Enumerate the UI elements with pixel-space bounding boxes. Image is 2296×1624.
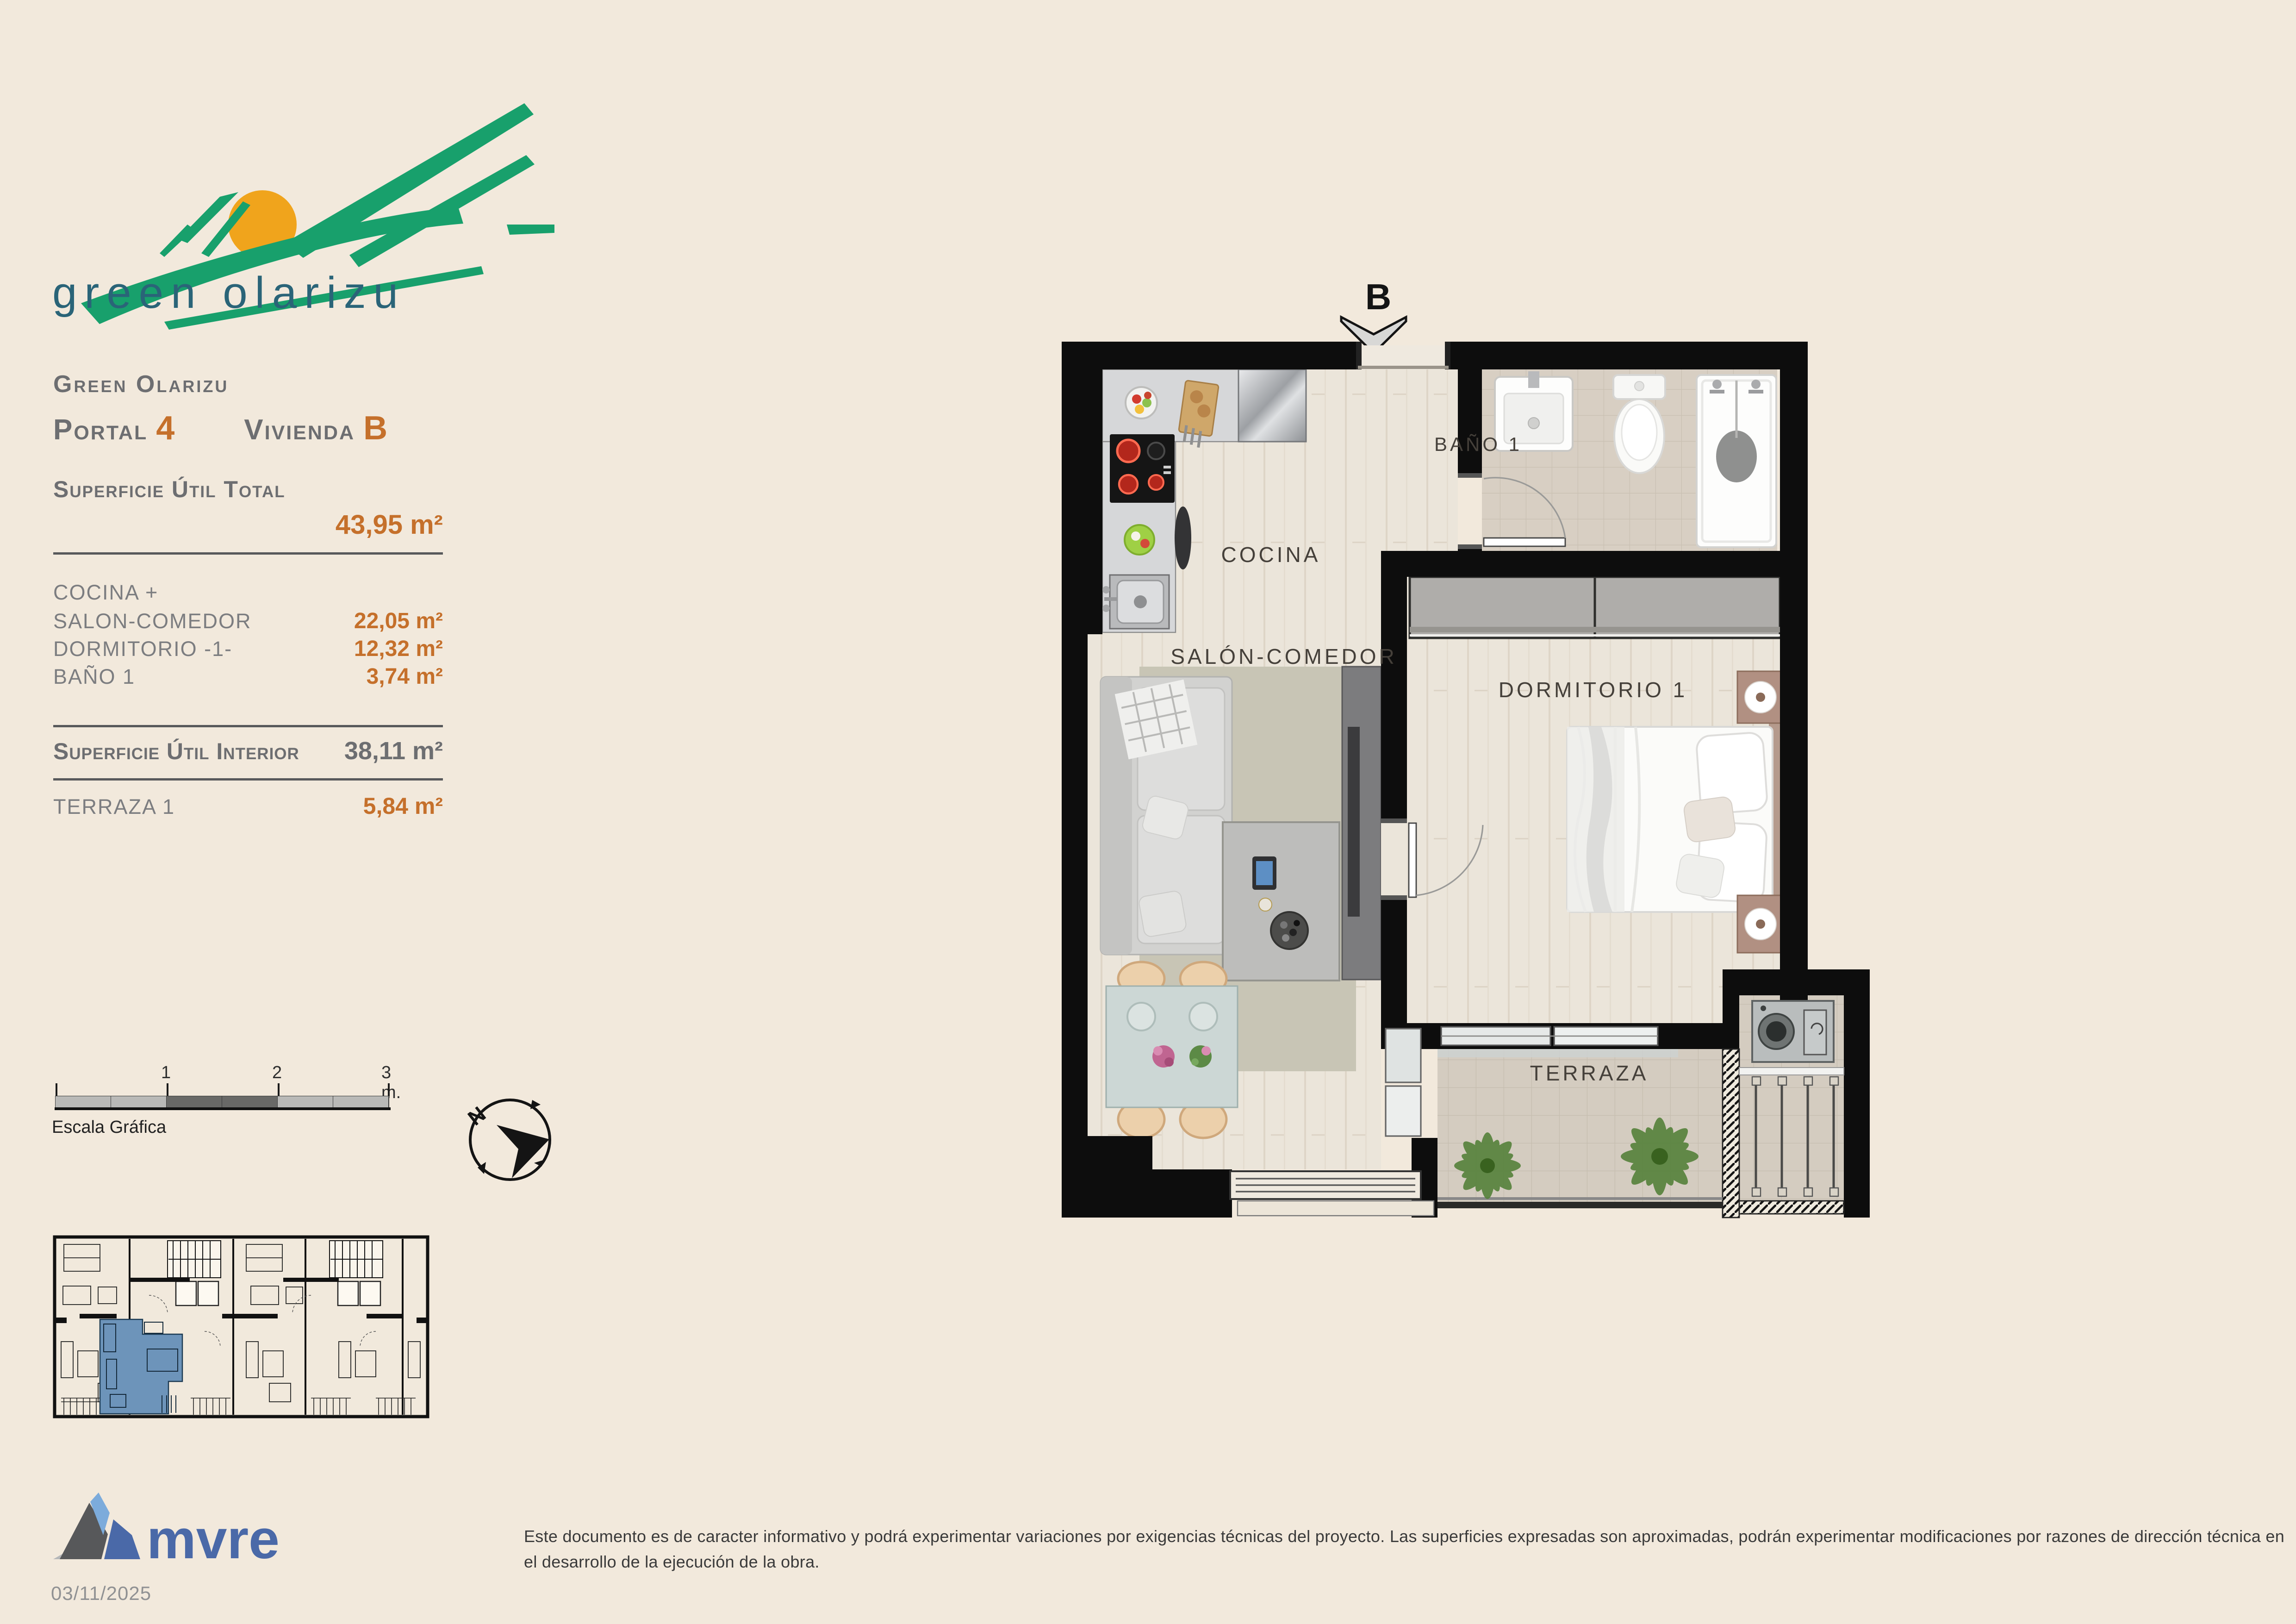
scale-tick-label: 2 bbox=[272, 1063, 282, 1083]
terrace-area-row: TERRAZA 1 5,84 m² bbox=[53, 793, 443, 819]
interior-label: Superficie Útil Interior bbox=[53, 738, 299, 765]
room-area-row: SALON-COMEDOR 22,05 m² bbox=[53, 608, 443, 636]
room-area-row: DORMITORIO -1- 12,32 m² bbox=[53, 636, 443, 664]
interior-value: 38,11 m² bbox=[344, 737, 443, 765]
room-area-list: COCINA + SALON-COMEDOR 22,05 m² DORMITOR… bbox=[53, 581, 443, 692]
entrance-letter-label: B bbox=[1346, 276, 1411, 318]
mvre-logo: mvre bbox=[49, 1490, 308, 1573]
terrace-label: TERRAZA 1 bbox=[53, 795, 175, 819]
room-label-salon: SALÓN-COMEDOR bbox=[1170, 644, 1397, 668]
kitchen-sink-icon bbox=[1102, 575, 1169, 629]
scale-tick bbox=[56, 1083, 57, 1096]
unit-summary-panel: Green Olarizu Portal 4 Vivienda B Superf… bbox=[53, 370, 443, 819]
room-area-row: BAÑO 1 3,74 m² bbox=[53, 664, 443, 692]
legal-disclaimer: Este documento es de caracter informativ… bbox=[524, 1524, 2290, 1574]
floor-plan: COCINA SALÓN-COMEDOR BAÑO 1 DORMITORIO 1… bbox=[1060, 338, 1874, 1227]
total-area-value: 43,95 m² bbox=[53, 509, 443, 540]
room-label: DORMITORIO -1- bbox=[53, 637, 232, 661]
room-label-bano: BAÑO 1 bbox=[1434, 433, 1522, 455]
room-label-cocina: COCINA bbox=[1221, 543, 1321, 567]
terrace-sliding-door bbox=[1386, 1029, 1421, 1136]
compass-north-label: N bbox=[464, 1102, 490, 1130]
scale-bar-segments bbox=[56, 1096, 389, 1107]
floorplan-document-page: green olarizu Green Olarizu Portal 4 Viv… bbox=[0, 0, 2296, 1624]
scale-tick bbox=[388, 1083, 390, 1096]
north-compass-icon: N bbox=[464, 1093, 556, 1186]
unit-title: Portal 4 Vivienda B bbox=[53, 409, 443, 447]
graphic-scale: 1 2 3 m. Escala Gráfica bbox=[52, 1063, 413, 1137]
mvre-wordmark: mvre bbox=[147, 1508, 280, 1570]
room-label: SALON-COMEDOR bbox=[53, 609, 252, 633]
stove-icon bbox=[1110, 434, 1175, 503]
divider bbox=[53, 552, 443, 555]
toilet-icon bbox=[1613, 375, 1665, 473]
nightstand bbox=[1737, 671, 1784, 723]
wardrobe bbox=[1410, 577, 1780, 638]
total-area-label: Superficie Útil Total bbox=[53, 476, 443, 503]
interior-area-row: Superficie Útil Interior 38,11 m² bbox=[53, 737, 443, 765]
nightstand bbox=[1737, 895, 1784, 953]
room-value: 3,74 m² bbox=[367, 664, 443, 689]
room-area-row: COCINA + bbox=[53, 581, 443, 608]
washing-machine-icon bbox=[1752, 1001, 1834, 1062]
vivienda-letter: B bbox=[363, 409, 387, 447]
document-date: 03/11/2025 bbox=[51, 1582, 151, 1605]
room-value: 22,05 m² bbox=[354, 608, 443, 634]
green-olarizu-logo: green olarizu bbox=[25, 25, 558, 331]
terrace-windows bbox=[1437, 1027, 1678, 1057]
room-label: BAÑO 1 bbox=[53, 665, 135, 689]
room-value: 12,32 m² bbox=[354, 636, 443, 662]
scale-bar-label: Escala Gráfica bbox=[52, 1118, 166, 1137]
divider bbox=[53, 725, 443, 727]
bed bbox=[1567, 718, 1782, 919]
living-room-window bbox=[1230, 1171, 1434, 1216]
sofa bbox=[1101, 677, 1232, 955]
shower-icon bbox=[1697, 375, 1776, 547]
terrace-value: 5,84 m² bbox=[363, 793, 443, 819]
room-label: COCINA + bbox=[53, 581, 158, 605]
portal-number: 4 bbox=[156, 409, 174, 447]
scale-bar-baseline bbox=[55, 1107, 391, 1110]
portal-label: Portal bbox=[53, 413, 148, 446]
mvre-mountains-icon bbox=[53, 1493, 140, 1559]
coffee-table bbox=[1223, 822, 1339, 981]
scale-tick bbox=[278, 1083, 280, 1096]
scale-tick bbox=[167, 1083, 168, 1096]
scale-tick-label: 1 bbox=[161, 1063, 171, 1083]
entrance-door bbox=[1356, 342, 1450, 369]
tv-unit bbox=[1342, 667, 1381, 980]
vivienda-label: Vivienda bbox=[244, 413, 355, 446]
divider bbox=[53, 778, 443, 781]
project-name: Green Olarizu bbox=[53, 370, 443, 398]
room-label-terraza: TERRAZA bbox=[1530, 1061, 1649, 1085]
room-label-dormitorio: DORMITORIO 1 bbox=[1499, 678, 1688, 702]
plate-icon bbox=[1125, 525, 1154, 555]
kitchen-appliance bbox=[1175, 506, 1191, 569]
key-plan-thumbnail bbox=[52, 1235, 431, 1430]
logo-wordmark: green olarizu bbox=[52, 268, 405, 318]
